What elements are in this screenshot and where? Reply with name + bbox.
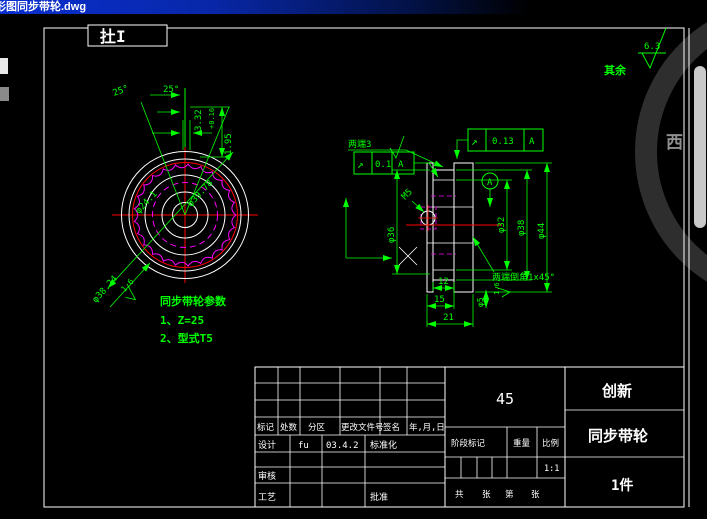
tb-date: 03.4.2	[326, 441, 359, 451]
runout-symbol-icon: ↗	[471, 135, 478, 148]
gdt-right-leader	[457, 140, 468, 159]
width-3-text: 21	[443, 313, 454, 323]
front-view: 25° 25° 3.32 +0.16 1.95 φ38.24 1.6 φ24.1…	[91, 84, 258, 345]
roughness-rest-label: 其余	[604, 63, 627, 77]
general-roughness: 其余 6.3	[604, 28, 666, 77]
ends-note-text: 两端3	[348, 138, 371, 150]
depth-dim-text: 1.95	[224, 133, 234, 155]
gdt-top-datum: A	[398, 160, 404, 170]
od-roughness-symbol: 1.6	[117, 277, 144, 303]
tb-col-doc: 更改文件号	[341, 422, 384, 433]
angle-right-text: 25°	[163, 85, 179, 95]
tb-col-zone: 分区	[308, 423, 326, 433]
pitch-tol-text: +0.16	[208, 108, 216, 129]
view-label: 扗I	[100, 27, 126, 46]
dia-1-text: φ32	[497, 217, 507, 233]
tb-sheet-unit2: 张	[531, 490, 540, 500]
ui-fragment-gray	[0, 87, 9, 101]
gdt-right-datum: A	[529, 137, 535, 147]
small-roughness-text: 1.6	[493, 282, 501, 295]
tb-audit-label: 审核	[258, 470, 276, 482]
title-block: 标记 处数 分区 更改文件号 签名 年,月,日 设计 fu 03.4.2 标准化…	[255, 367, 684, 507]
datum-label-text: A	[487, 178, 493, 188]
thread-leader	[412, 201, 424, 212]
datum-flag: A	[482, 173, 498, 207]
watermark-bar	[694, 66, 706, 228]
tb-col-count: 处数	[280, 422, 298, 433]
window-title: 形图同步带轮.dwg	[0, 1, 86, 13]
pitch-dim-text: 3.32	[194, 109, 204, 131]
dia-3-text: φ44	[537, 223, 547, 239]
tb-sheet-no-label: 第	[505, 489, 514, 500]
window-titlebar[interactable]: 形图同步带轮.dwg	[0, 0, 707, 14]
pitch-dia-text: φ39.78	[186, 178, 215, 209]
od-roughness-text: 1.6	[119, 277, 135, 294]
gdt-top-value: 0.1	[375, 160, 391, 170]
angle-left-text: 25°	[112, 84, 131, 99]
tb-stage-label: 阶段标记	[451, 438, 486, 449]
roughness-rest-value: 6.3	[644, 42, 660, 52]
small-dia-text: φ5	[476, 297, 485, 307]
tb-sheet-unit1: 张	[482, 490, 491, 500]
width-2-text: 15	[434, 295, 445, 305]
notes-title: 同步带轮参数	[160, 294, 227, 308]
width-1-text: 12	[438, 277, 449, 287]
tb-design-label: 设计	[258, 439, 276, 451]
bore-dim-text: φ24.1	[134, 189, 160, 216]
diagonal-dim-line	[108, 152, 233, 288]
gdt-frame-top: ↗ 0.1 A	[354, 152, 438, 177]
tb-part-name: 同步带轮	[588, 427, 648, 445]
small-roughness-symbol: 1.6	[493, 282, 510, 297]
tb-scale-value: 1:1	[544, 464, 559, 474]
tb-col-sign: 签名	[383, 422, 400, 433]
watermark-char: 西	[666, 133, 683, 153]
tb-approve-label: 批准	[370, 491, 388, 503]
chamfer-note-text: 两端倒角1x45°	[492, 271, 555, 283]
dia-left-text: φ36	[387, 227, 397, 243]
side-view: 两端3 ↗ 0.1 A ↗ 0.13 A A M	[346, 129, 555, 327]
cad-canvas[interactable]: 扗I 西 其余 6.3 25° 25° 3	[0, 0, 707, 519]
thread-label-text: M5	[400, 187, 415, 202]
dia-2-text: φ38	[517, 220, 527, 236]
hub-disc-outline	[454, 163, 473, 292]
tb-col-date: 年,月,日	[409, 422, 445, 433]
note-line-2: 2、型式T5	[160, 331, 213, 345]
gdt-frame-right: ↗ 0.13 A	[457, 129, 543, 159]
tb-scale-label: 比例	[542, 438, 559, 449]
ui-fragment-white	[0, 58, 8, 74]
tb-sheet-total-label: 共	[455, 490, 464, 500]
note-line-1: 1、Z=25	[160, 314, 204, 327]
tb-company: 创新	[601, 382, 632, 400]
tb-material: 45	[496, 390, 514, 408]
chamfer-leader	[473, 237, 494, 272]
tb-std-label: 标准化	[370, 439, 397, 451]
runout-symbol-icon: ↗	[357, 158, 364, 171]
tb-weight-label: 重量	[513, 438, 531, 449]
tb-col-mark: 标记	[257, 422, 275, 433]
gdt-right-value: 0.13	[492, 137, 514, 147]
tb-process-label: 工艺	[258, 492, 276, 503]
tb-designer: fu	[298, 441, 309, 451]
tb-quantity: 1件	[611, 477, 633, 494]
